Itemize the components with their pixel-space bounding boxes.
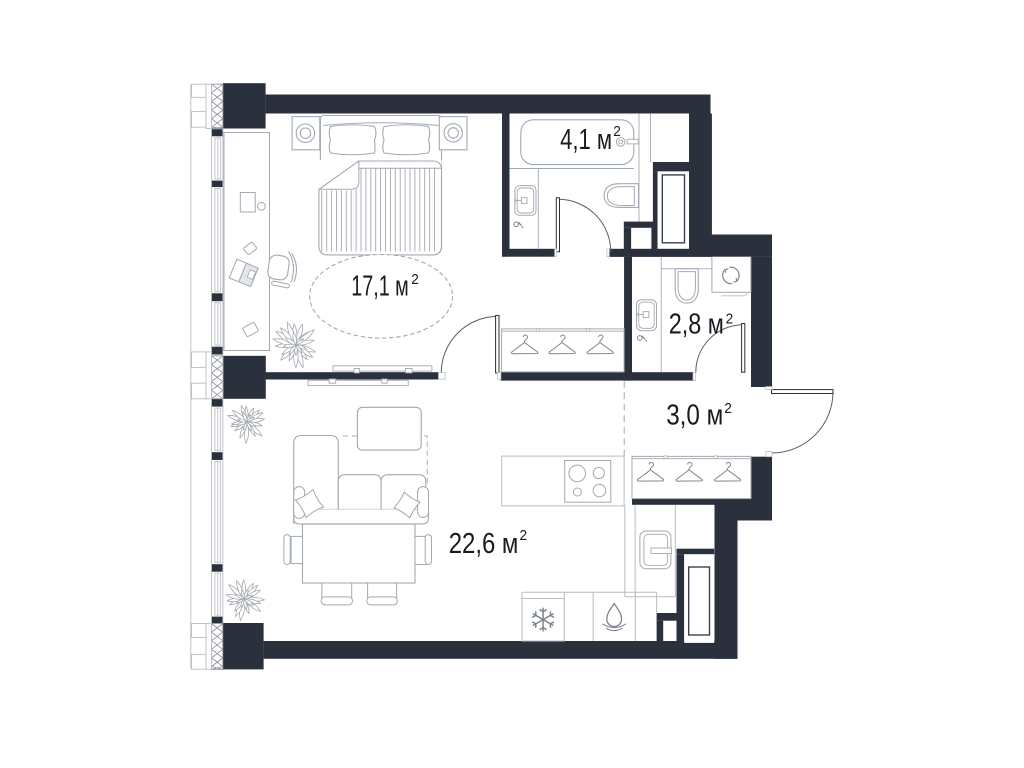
svg-text:2,8 м: 2,8 м: [669, 309, 724, 341]
svg-text:2: 2: [724, 401, 732, 417]
svg-text:2: 2: [411, 272, 419, 288]
svg-text:4,1 м: 4,1 м: [560, 124, 612, 156]
svg-text:2: 2: [613, 124, 621, 140]
svg-text:2: 2: [520, 528, 528, 544]
svg-text:22,6 м: 22,6 м: [449, 528, 519, 560]
svg-text:3,0 м: 3,0 м: [666, 400, 723, 432]
svg-text:17,1 м: 17,1 м: [351, 270, 409, 302]
svg-text:2: 2: [726, 311, 734, 327]
